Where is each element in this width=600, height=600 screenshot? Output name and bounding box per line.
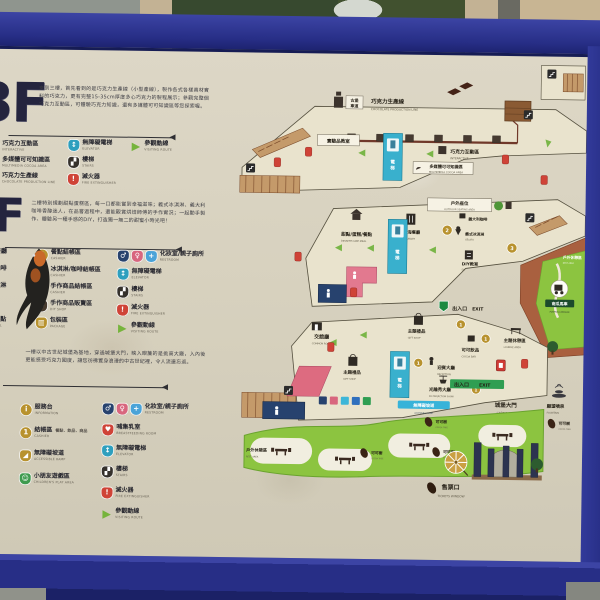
restroom-area xyxy=(318,284,346,302)
map-label-en: 3D PROJECTION SHOW xyxy=(429,395,455,398)
legend-item: ▞ 樓梯STAIRS xyxy=(68,157,101,170)
map-label-en: REST AREA xyxy=(563,262,575,265)
label-en: RESTROOM xyxy=(145,411,172,415)
label-zh: 結帳區 xyxy=(34,426,52,433)
floor-2f-intro: 二樓特別規劃甜點蛋糕區，每一口都能嘗到幸福滋味；義式冰淇淋、義大利咖啡香醇迷人，… xyxy=(31,199,205,226)
machine-icon xyxy=(334,97,343,108)
map-label-zh: 義式冰淇淋 xyxy=(465,231,484,236)
map-label-en: ACCESSIBLE RAMP xyxy=(414,412,433,415)
label-en: CASHIER xyxy=(34,434,67,438)
badge-number: 1 xyxy=(417,361,420,367)
label-zh: 義大利咖啡 xyxy=(0,266,7,273)
map-label-en: REST AREA xyxy=(246,455,259,458)
label-en: FIRE EXTINGUISHER xyxy=(82,181,116,185)
stairs-icon: ▞ xyxy=(117,287,128,298)
map-label-en: TICKETS WINDOW xyxy=(436,494,464,498)
legend-item: ▞ 樓梯STAIRS xyxy=(117,287,150,300)
stairs-icon: ▞ xyxy=(102,466,113,477)
elevator-tower: 電 梯 xyxy=(383,133,403,180)
coffee-cup-icon xyxy=(459,213,465,218)
legend-item: ▶ 參觀動線VISITING ROUTE xyxy=(117,323,176,337)
map-label-zh: 南瓜馬車 xyxy=(552,300,568,306)
route-arrow-icon: ▶ xyxy=(130,141,141,152)
floor-1f-intro: 一樓以中古世紀城堡為基地，穿過城堡大門，映入眼簾的是挑高大廳，入內後更能感受巧克… xyxy=(25,348,205,367)
divider-arrow-1f xyxy=(3,385,167,388)
label-en: STAIRS xyxy=(131,294,143,298)
breastfeeding-icon: ♥ xyxy=(102,424,113,435)
legend-item: 地中海餐廳RESTAURANT xyxy=(0,248,13,262)
legend-item: ↕ 無障礙電梯ELEVATOR xyxy=(117,269,161,283)
map-label-en: DESSERT·CAKE·MEAL xyxy=(341,240,367,243)
map-label-zh: 出入口 xyxy=(452,305,467,312)
label-en: STAIRS xyxy=(116,473,128,477)
legend-item: 1 結帳區餐點．飲品．商品CASHIER xyxy=(20,427,87,441)
floor-label-2f: 2F xyxy=(0,191,23,238)
map-label-zh: 城堡大門 xyxy=(495,401,518,409)
legend-item: ♂ ♀ + 化妝室/親子廁所RESTROOM xyxy=(103,403,189,417)
legend-item: ♂ ♀ + 化妝室/親子廁所RESTROOM xyxy=(118,251,204,265)
legend-item: i 服務台INFORMATION xyxy=(21,404,74,418)
badge-number: 3 xyxy=(510,246,514,252)
coffee-bean-icon xyxy=(425,481,438,495)
restroom-family-icon: + xyxy=(146,251,157,262)
label-en: ELEVATOR xyxy=(82,147,101,151)
legend-item: ◢ 無障礙坡道ACCESSIBLE RAMP xyxy=(20,450,85,464)
restroom-female-icon: ♀ xyxy=(117,404,128,415)
map-label-en: FOUNTAIN xyxy=(547,412,559,415)
map-label-en: EXIT xyxy=(479,383,491,389)
ground-corner-right xyxy=(566,582,600,600)
legend-item: 巧克力互動區INTERACTIVE xyxy=(0,141,38,155)
accessible-ramp-icon: ◢ xyxy=(20,450,31,461)
label-en: FIRE EXTINGUISHER xyxy=(131,312,165,316)
interactive-icon xyxy=(438,146,446,154)
restroom-area xyxy=(263,402,305,420)
label-zh: 地中海餐廳 xyxy=(0,249,13,256)
signboard: 3F 來到三樓，首先看到的是巧克力生產線（小型產線），製作各式各樣真材實料的巧克… xyxy=(0,12,600,600)
information-icon: i xyxy=(21,404,32,415)
label-zh: DIY教室 xyxy=(0,300,4,307)
map-label-zh: 可可樹 xyxy=(558,421,570,426)
children-play-icon: ☺ xyxy=(20,473,31,484)
legend-item: DIY教室DIY ROOM xyxy=(0,299,4,312)
slide-icon xyxy=(506,202,512,209)
map-label-en: EXIT xyxy=(472,307,484,313)
ground-corner-left xyxy=(0,588,46,600)
elevator-tower: 電 梯 xyxy=(388,219,408,273)
label-en: RESTROOM xyxy=(160,258,187,262)
legend-item: ! 滅火器FIRE EXTINGUISHER xyxy=(117,305,186,319)
restroom-female-icon: ♀ xyxy=(132,251,143,262)
sign-face: 3F 來到三樓，首先看到的是巧克力生產線（小型產線），製作各式各樣真材實料的巧克… xyxy=(0,46,596,562)
restroom-male-icon: ♂ xyxy=(103,403,114,414)
label-en: FIRE EXTINGUISHER xyxy=(115,494,149,498)
label-en: DESSERT·CAKE·MEAL xyxy=(0,323,2,327)
fountain-icon xyxy=(552,384,566,398)
label-en: ACCESSIBLE RAMP xyxy=(34,457,66,461)
fire-extinguisher-icon: ! xyxy=(117,305,128,316)
badge-number: 1 xyxy=(459,322,462,328)
legend-item: ! 滅火器FIRE EXTINGUISHER xyxy=(68,174,137,188)
map-label-en: GIFT SHOP xyxy=(343,378,356,381)
map-label-en: GELATO xyxy=(465,238,474,241)
map-label-zh: 義大利咖啡 xyxy=(468,216,487,221)
elevator-icon: ↕ xyxy=(68,140,79,151)
floor-3f-intro: 來到三樓，首先看到的是巧克力生產線（小型產線），製作各式各樣真材實料的巧克力，更… xyxy=(39,84,209,111)
map-label-en: CHOCOLATE PRODUCTION LINE xyxy=(371,107,418,112)
elevator-icon: ↕ xyxy=(102,445,113,456)
label-en: CHILDREN'S PLAY AREA xyxy=(34,480,74,484)
divider-arrow-3f xyxy=(8,135,174,138)
cashier-icon: 1 xyxy=(20,427,31,438)
legend-item: 義式冰淇淋GELATO xyxy=(0,282,6,296)
label-en: ELEVATOR xyxy=(131,276,150,280)
badge-number: 1 xyxy=(484,337,487,343)
legend-item: ♥ 哺集乳室BREASTFEEDING ROOM xyxy=(102,424,181,438)
stairs-icon: ▞ xyxy=(68,157,79,168)
map-label-en: COCOA TREE xyxy=(435,426,448,429)
label-en: BREASTFEEDING ROOM xyxy=(116,431,156,435)
route-arrow-icon: ▶ xyxy=(117,323,128,334)
legend-item: ☺ 小朋友遊戲區CHILDREN'S PLAY AREA xyxy=(20,473,99,487)
gift-bag-icon xyxy=(414,316,423,325)
route-arrow-icon: ▶ xyxy=(101,508,112,519)
label-en: VISITING ROUTE xyxy=(131,330,159,334)
elevator-icon: ↕ xyxy=(117,269,128,280)
map-label-zh: 可可樹 xyxy=(436,419,448,424)
exit-shield-icon xyxy=(439,301,448,312)
restroom-family-icon: + xyxy=(131,404,142,415)
legend-item: ↕ 無障礙電梯ELEVATOR xyxy=(68,140,112,154)
fire-extinguisher-icon: ! xyxy=(68,174,79,185)
map-label-zh: 售票口 xyxy=(442,483,460,491)
label-en: INFORMATION xyxy=(35,411,59,415)
restroom-icon-row xyxy=(319,396,371,405)
map-label-en: OUTDOOR SEATING AREA xyxy=(444,208,475,211)
map-label-zh: 戶外休憩區 xyxy=(562,255,582,260)
frame-bottom xyxy=(0,554,600,600)
map-label-en: COCOA TREE xyxy=(371,457,384,460)
map-label-zh: 願望噴泉 xyxy=(546,403,565,410)
cocoa-tree-marker: 可可樹 COCOA TREE xyxy=(546,418,572,431)
floor-3f-plate xyxy=(240,61,588,197)
label-note: 餐點．飲品．商品 xyxy=(55,429,87,434)
chocolate-piece-icon xyxy=(447,88,461,95)
legend-item: 義大利咖啡COFFEE xyxy=(0,265,7,279)
map-label-en: GIFT SHOP xyxy=(408,337,421,340)
legend-item: ↕ 無障礙電梯ELEVATOR xyxy=(102,445,146,459)
map-label-zh: 巧克力生產線 xyxy=(371,97,405,105)
map-label-en: INTERACTIVE xyxy=(450,156,469,160)
label-en: VISITING ROUTE xyxy=(144,148,172,152)
label-en: ELEVATOR xyxy=(116,452,135,456)
label-en: MULTIMEDIA COCOA AREA xyxy=(2,164,47,168)
legend-item: ▞ 樓梯STAIRS xyxy=(102,466,135,479)
map-label-en: LOUNGE AREA xyxy=(504,346,522,349)
label-en: CHOCOLATE PRODUCTION LINE xyxy=(2,180,56,184)
gift-bag-icon xyxy=(348,357,357,366)
map-label-zh: 可可樹 xyxy=(371,450,383,455)
map-label-en: MULTIMEDIA COCOA AREA xyxy=(429,170,463,174)
legend-item: ! 滅火器FIRE EXTINGUISHER xyxy=(101,487,170,501)
map-label-en: COCOA BAR xyxy=(461,355,476,358)
label-en: STAIRS xyxy=(82,164,94,168)
restroom-male-icon: ♂ xyxy=(118,251,129,262)
table-icon xyxy=(511,328,521,330)
map-label-zh: 交誼廳 xyxy=(314,333,329,340)
map-label-zh: 出入口 xyxy=(454,381,469,388)
label-en: VISITING ROUTE xyxy=(115,515,143,519)
cocoa-cup-icon xyxy=(468,335,475,341)
legend-item: ▶ 參觀動線VISITING ROUTE xyxy=(101,508,160,522)
chocolate-piece-icon xyxy=(459,82,473,89)
facility-map: 古堡 車道 巧克力生產線 CHOCOLATE PRODUCTION LINE 實… xyxy=(222,55,600,552)
label-zh: 義式冰淇淋 xyxy=(0,283,6,290)
diy-icon xyxy=(465,250,473,259)
badge-number: 2 xyxy=(445,228,449,234)
map-label-en: COCOA TREE xyxy=(558,428,571,431)
fire-extinguisher-icon: ! xyxy=(101,487,112,498)
legend-item: 多媒體可可知識區MULTIMEDIA COCOA AREA xyxy=(0,157,74,171)
signboard-photo: 3F 來到三樓，首先看到的是巧克力生產線（小型產線），製作各式各樣真材實料的巧克… xyxy=(0,0,600,600)
map-label: 古堡 xyxy=(350,97,358,103)
koi-fish xyxy=(15,244,62,333)
label-en: INTERACTIVE xyxy=(2,148,24,152)
map-label: 車道 xyxy=(350,102,358,108)
map-label-en: PUMPKIN CARRIAGE xyxy=(550,311,571,314)
legend-item: ▶ 參觀動線VISITING ROUTE xyxy=(130,141,189,155)
utensils-icon xyxy=(406,214,415,225)
elevator-tower: 電 梯 xyxy=(390,351,410,397)
